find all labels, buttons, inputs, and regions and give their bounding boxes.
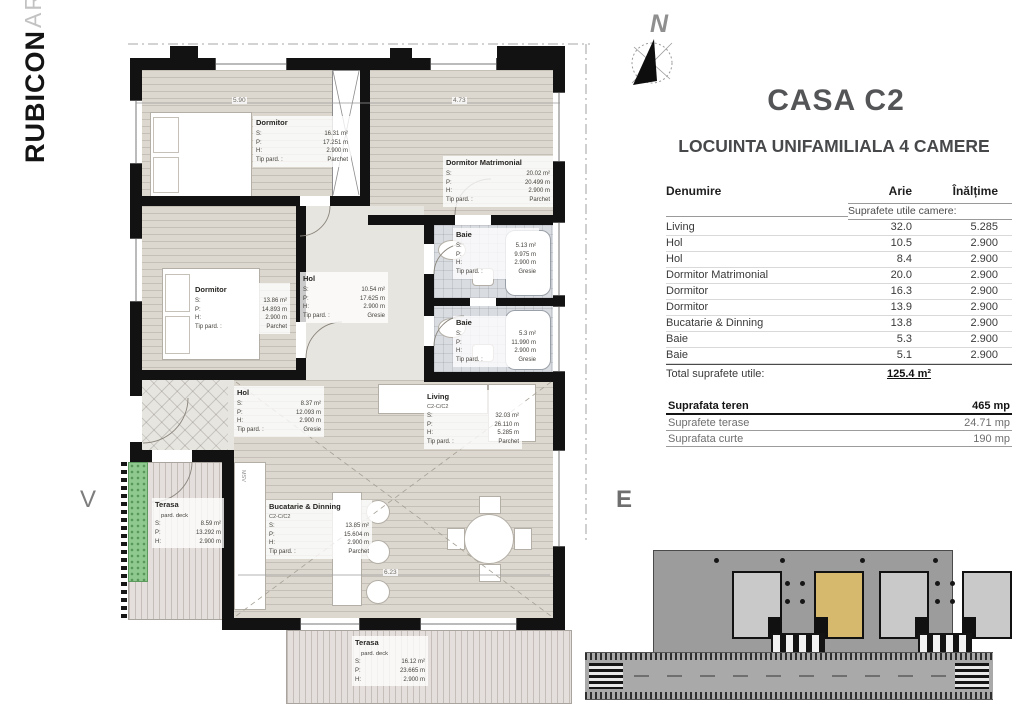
room-cell: Dormitor Matrimonial xyxy=(666,269,854,281)
room-label-dormitor1: Dormitor S:16.31 m² P:17.251 m H:2.900 m… xyxy=(253,116,351,167)
stool xyxy=(366,580,390,604)
summary-value: 465 mp xyxy=(972,400,1010,412)
window xyxy=(130,238,142,302)
floor-terasa-south xyxy=(286,630,572,704)
west-direction-label: V xyxy=(80,486,96,514)
house-roof xyxy=(962,571,1012,639)
perimeter-value: 23.665 m xyxy=(376,667,425,676)
summary-value: 24.71 mp xyxy=(964,417,1010,429)
area-value: 13.86 m² xyxy=(223,297,287,306)
room-label-baie2: Baie S:5.3 m² P:11.990 m H:2.900 m Tip p… xyxy=(453,316,539,367)
house-roof-highlighted xyxy=(814,571,864,639)
summary-value: 190 mp xyxy=(973,433,1010,445)
height-value: 2.900 m xyxy=(299,539,369,548)
area-value: 5.13 m² xyxy=(480,242,536,251)
page-subtitle: LOCUINTA UNIFAMILIALA 4 CAMERE xyxy=(650,136,1018,157)
perimeter-value: 15.604 m xyxy=(299,531,369,540)
site-dot xyxy=(950,581,955,586)
height-value: 2.900 m xyxy=(376,676,425,685)
property-hatch-marks xyxy=(121,462,127,618)
window xyxy=(553,92,565,162)
window xyxy=(553,306,565,372)
window xyxy=(420,618,517,630)
room-cell: Baie xyxy=(666,349,854,361)
site-dot xyxy=(950,599,955,604)
room-name: Terasa xyxy=(155,500,221,511)
table-section-row: Suprafete utile camere: xyxy=(666,203,1012,220)
wall xyxy=(424,372,565,382)
east-direction-label: E xyxy=(616,486,632,514)
chair xyxy=(514,528,532,550)
room-cell: Baie xyxy=(666,333,854,345)
height-cell: 2.900 xyxy=(926,237,1012,249)
floor-type: Gresie xyxy=(500,356,536,365)
table-row: Dormitor16.32.900 xyxy=(666,284,1012,300)
hatched-closet-area xyxy=(142,380,228,450)
road-crossing xyxy=(955,663,989,689)
col-header-height: Înălțime xyxy=(926,184,1012,198)
wall xyxy=(360,58,370,206)
pillar xyxy=(170,46,198,58)
table-row: Hol10.52.900 xyxy=(666,236,1012,252)
room-name: Hol xyxy=(237,388,321,399)
room-label-hol1: Hol S:10.54 m² P:17.625 m H:2.900 m Tip … xyxy=(300,272,388,323)
door-opening xyxy=(300,196,330,206)
room-label-terasa-west: Terasa pard. deck S:8.59 m² P:13.292 m H… xyxy=(152,498,224,548)
door-opening xyxy=(296,322,306,358)
area-cell: 20.0 xyxy=(854,269,926,281)
architectural-sheet: RUBICON ARCHITECTS N V E xyxy=(0,0,1018,720)
area-cell: 5.1 xyxy=(854,349,926,361)
site-dot xyxy=(780,558,785,563)
height-cell: 5.285 xyxy=(926,221,1012,233)
area-cell: 5.3 xyxy=(854,333,926,345)
room-name: Baie xyxy=(456,318,536,329)
section-label: Suprafete utile camere: xyxy=(848,203,1012,220)
room-cell: Dormitor xyxy=(666,301,854,313)
perimeter-value: 13.292 m xyxy=(175,529,221,538)
site-dot xyxy=(785,599,790,604)
bed xyxy=(150,112,252,200)
terrace-door xyxy=(300,618,360,630)
chair xyxy=(447,528,465,550)
table-total-row: Total suprafete utile: 125.4 m² xyxy=(666,364,1012,383)
window xyxy=(215,58,287,70)
chair xyxy=(479,496,501,514)
room-label-terasa-south: Terasa pard. deck S:16.12 m² P:23.665 m … xyxy=(352,636,428,686)
area-value: 20.02 m² xyxy=(477,170,550,179)
wall xyxy=(142,370,306,380)
height-value: 2.900 m xyxy=(284,147,348,156)
perimeter-value: 26.110 m xyxy=(455,421,519,430)
pillar xyxy=(497,46,565,58)
north-compass: N xyxy=(620,10,690,90)
pillar xyxy=(390,48,412,58)
room-name: Baie xyxy=(456,230,536,241)
area-cell: 13.9 xyxy=(854,301,926,313)
appliance-label: MSV xyxy=(240,470,246,482)
summary-label: Suprafata teren xyxy=(668,400,749,412)
floor-type: pard. deck xyxy=(355,650,425,658)
room-label-bucatarie: Bucatarie & Dinning C2-C/C2 S:13.85 m² P… xyxy=(266,500,372,559)
height-value: 2.900 m xyxy=(477,187,550,196)
height-value: 2.900 m xyxy=(175,538,221,547)
room-name: Dormitor xyxy=(256,118,348,129)
height-cell: 2.900 xyxy=(926,317,1012,329)
perimeter-value: 9.975 m xyxy=(480,251,536,260)
floor-type: Parchet xyxy=(478,438,519,447)
summary-row: Suprafata curte 190 mp xyxy=(666,431,1012,447)
door-opening xyxy=(424,316,434,346)
area-value: 32.03 m² xyxy=(455,412,519,421)
kitchen-counter xyxy=(234,462,266,610)
site-dot xyxy=(785,581,790,586)
area-cell: 10.5 xyxy=(854,237,926,249)
area-value: 13.85 m² xyxy=(299,522,369,531)
dimension-label: 6.23 xyxy=(383,569,398,576)
site-dot xyxy=(800,581,805,586)
perimeter-value: 11.990 m xyxy=(480,339,536,348)
site-plan xyxy=(585,546,1018,714)
perimeter-value: 17.251 m xyxy=(284,139,348,148)
table-row: Dormitor Matrimonial20.02.900 xyxy=(666,268,1012,284)
col-header-name: Denumire xyxy=(666,184,854,198)
site-dot xyxy=(800,599,805,604)
floor-type: Parchet xyxy=(324,548,369,557)
height-cell: 2.900 xyxy=(926,285,1012,297)
room-label-matrimonial: Dormitor Matrimonial S:20.02 m² P:20.499… xyxy=(443,156,553,207)
logo-primary-text: RUBICON xyxy=(20,30,51,163)
window xyxy=(130,100,142,164)
summary-label: Suprafete terase xyxy=(668,417,749,429)
room-label-hol2: Hol S:8.37 m² P:12.093 m H:2.900 m Tip p… xyxy=(234,386,324,437)
height-value: 5.285 m xyxy=(455,429,519,438)
total-value: 125.4 m² xyxy=(854,368,964,380)
perimeter-value: 14.893 m xyxy=(223,306,287,315)
floor-type: Parchet xyxy=(307,156,348,165)
room-name: Dormitor xyxy=(195,285,287,296)
perimeter-value: 17.625 m xyxy=(328,295,385,304)
chair xyxy=(479,564,501,582)
room-cell: Hol xyxy=(666,253,854,265)
site-dot xyxy=(714,558,719,563)
room-name: Terasa xyxy=(355,638,425,649)
perimeter-value: 20.499 m xyxy=(477,179,550,188)
house-roof xyxy=(732,571,782,639)
floor-type: Gresie xyxy=(500,268,536,277)
room-code: C2-C/C2 xyxy=(269,514,369,522)
height-value: 2.900 m xyxy=(223,314,287,323)
house-roof xyxy=(879,571,929,639)
area-value: 8.37 m² xyxy=(262,400,321,409)
dimension-label: 4.73 xyxy=(452,97,467,104)
hedge-strip xyxy=(128,462,148,582)
road-centerline xyxy=(601,675,977,677)
north-label: N xyxy=(650,10,668,39)
table-row: Dormitor13.92.900 xyxy=(666,300,1012,316)
height-cell: 2.900 xyxy=(926,253,1012,265)
height-value: 2.900 m xyxy=(480,347,536,356)
room-name: Bucatarie & Dinning xyxy=(269,502,369,513)
area-cell: 8.4 xyxy=(854,253,926,265)
logo-secondary-text: ARCHITECTS xyxy=(20,0,51,28)
room-spec-table: Denumire Arie Înălțime Suprafete utile c… xyxy=(666,182,1012,383)
wall xyxy=(130,58,565,70)
room-code: C2-C/C2 xyxy=(427,404,519,412)
door-opening xyxy=(455,215,491,225)
entrance-door-opening xyxy=(130,396,142,442)
area-value: 16.12 m² xyxy=(376,658,425,667)
summary-row: Suprafata teren 465 mp xyxy=(666,398,1012,415)
height-value: 2.900 m xyxy=(480,259,536,268)
room-label-dormitor2: Dormitor S:13.86 m² P:14.893 m H:2.900 m… xyxy=(192,283,290,334)
table-header: Denumire Arie Înălțime xyxy=(666,182,1012,203)
window xyxy=(430,58,497,70)
room-name: Living xyxy=(427,392,519,403)
room-cell: Living xyxy=(666,221,854,233)
table-row: Baie5.32.900 xyxy=(666,332,1012,348)
floor-type: Parchet xyxy=(503,196,550,205)
site-dot xyxy=(933,558,938,563)
site-dot xyxy=(935,581,940,586)
height-cell: 2.900 xyxy=(926,269,1012,281)
room-name: Hol xyxy=(303,274,385,285)
table-row: Bucatarie & Dinning13.82.900 xyxy=(666,316,1012,332)
floor-type: Gresie xyxy=(348,312,385,321)
col-header-area: Arie xyxy=(854,184,926,198)
room-cell: Dormitor xyxy=(666,285,854,297)
door-opening xyxy=(470,298,496,306)
floor-type: pard. deck xyxy=(155,512,221,520)
total-label: Total suprafete utile: xyxy=(666,368,854,380)
height-cell: 2.900 xyxy=(926,349,1012,361)
dimension-label: 5.90 xyxy=(232,97,247,104)
dining-table xyxy=(464,514,514,564)
height-cell: 2.900 xyxy=(926,333,1012,345)
table-row: Baie5.12.900 xyxy=(666,348,1012,364)
wall xyxy=(142,196,368,206)
room-name: Dormitor Matrimonial xyxy=(446,158,550,169)
floor-type: Parchet xyxy=(246,323,287,332)
perimeter-value: 12.093 m xyxy=(262,409,321,418)
summary-row: Suprafete terase 24.71 mp xyxy=(666,415,1012,431)
window xyxy=(553,222,565,296)
height-value: 2.900 m xyxy=(328,303,385,312)
area-value: 8.59 m² xyxy=(175,520,221,529)
logo: RUBICON ARCHITECTS xyxy=(20,8,51,163)
area-cell: 16.3 xyxy=(854,285,926,297)
area-value: 16.31 m² xyxy=(284,130,348,139)
site-summary: Suprafata teren 465 mp Suprafete terase … xyxy=(666,398,1012,447)
site-dot xyxy=(860,558,865,563)
area-value: 5.3 m² xyxy=(480,330,536,339)
area-cell: 13.8 xyxy=(854,317,926,329)
door-opening xyxy=(152,450,192,462)
road-crossing xyxy=(589,663,623,689)
floor-type: Gresie xyxy=(283,426,321,435)
page-title: CASA C2 xyxy=(660,84,1012,118)
summary-label: Suprafata curte xyxy=(668,433,743,445)
area-value: 10.54 m² xyxy=(328,286,385,295)
road xyxy=(585,652,993,700)
wall xyxy=(424,215,434,380)
site-dot xyxy=(935,599,940,604)
divider xyxy=(666,203,848,217)
room-cell: Bucatarie & Dinning xyxy=(666,317,854,329)
door-opening xyxy=(424,244,434,274)
window xyxy=(553,450,565,547)
site-plan-lot-band xyxy=(653,550,953,654)
table-row: Living32.05.285 xyxy=(666,220,1012,236)
area-cell: 32.0 xyxy=(854,221,926,233)
height-value: 2.900 m xyxy=(262,417,321,426)
height-cell: 2.900 xyxy=(926,301,1012,313)
table-row: Hol8.42.900 xyxy=(666,252,1012,268)
room-label-living: Living C2-C/C2 S:32.03 m² P:26.110 m H:5… xyxy=(424,390,522,449)
room-label-baie1: Baie S:5.13 m² P:9.975 m H:2.900 m Tip p… xyxy=(453,228,539,279)
room-cell: Hol xyxy=(666,237,854,249)
